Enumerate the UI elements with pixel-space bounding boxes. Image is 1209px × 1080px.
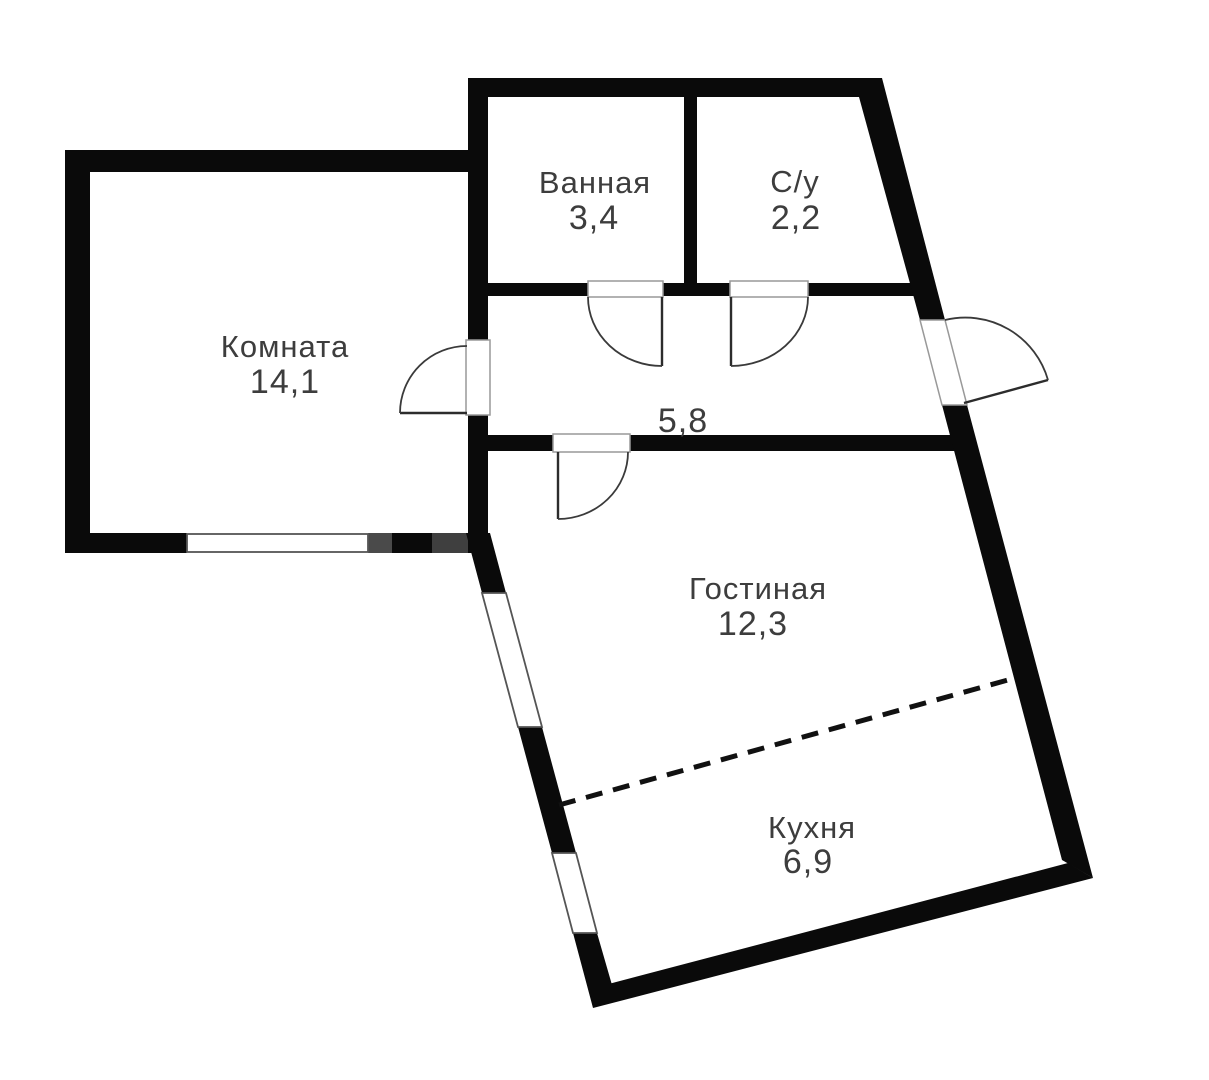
wall-room-bottom-gray-segment-2 [432, 533, 470, 553]
door-arc-wc [731, 297, 808, 366]
doors [400, 281, 1048, 519]
window-room-bottom [187, 534, 368, 552]
door-arc-entrance [945, 318, 1048, 380]
door-opening-wc [730, 281, 808, 297]
label-room-area: 14,1 [250, 363, 320, 401]
window-living-left-1 [482, 593, 542, 727]
label-bathroom-name: Ванная [539, 165, 651, 200]
wall-left-slant-seg1 [466, 533, 506, 593]
kitchen-living-dashed-divider [559, 678, 1015, 805]
label-wc-area: 2,2 [771, 199, 821, 237]
wall-right-slant-lower [942, 405, 1093, 878]
door-opening-living [553, 434, 630, 452]
label-hallway-area: 5,8 [658, 402, 708, 440]
door-opening-entrance [920, 320, 967, 405]
label-kitchen-area: 6,9 [783, 843, 833, 881]
wall-room-bottom-left [65, 533, 187, 553]
door-arc-living [558, 452, 628, 519]
door-opening-room [466, 340, 490, 415]
wall-room-left [65, 150, 90, 553]
wall-bottom-slant [593, 863, 1093, 1008]
label-wc-name: С/у [770, 164, 820, 199]
door-opening-bathroom [588, 281, 663, 297]
door-leaf-entrance [964, 380, 1048, 403]
wall-shared-vertical-upper [468, 78, 488, 340]
door-arc-bathroom [588, 297, 662, 366]
label-room-name: Комната [221, 329, 349, 364]
floor-plan-drawing: Ванная 3,4 С/у 2,2 Комната 14,1 5,8 Гост… [0, 0, 1209, 1080]
wall-left-slant-seg2 [518, 727, 576, 853]
label-living-name: Гостиная [689, 571, 827, 606]
wall-hall-bottom-seg1 [468, 435, 553, 451]
wall-room-top [65, 150, 488, 172]
wall-bathroom-top [468, 78, 882, 97]
wall-bath-bottom-seg1 [487, 283, 588, 296]
label-bathroom-area: 3,4 [569, 199, 619, 237]
wall-bathroom-wc-divider [684, 97, 697, 290]
label-living-area: 12,3 [718, 605, 788, 643]
wall-bath-bottom-seg2 [663, 283, 730, 296]
window-kitchen-left [552, 853, 597, 933]
door-arc-room [400, 346, 467, 413]
wall-room-bottom-gray-segment-1 [368, 533, 392, 553]
floor-plan-page: Ванная 3,4 С/у 2,2 Комната 14,1 5,8 Гост… [0, 0, 1209, 1080]
wall-bath-bottom-seg3 [808, 283, 918, 296]
wall-room-bottom-black-segment [392, 533, 432, 553]
label-kitchen-name: Кухня [768, 810, 856, 845]
